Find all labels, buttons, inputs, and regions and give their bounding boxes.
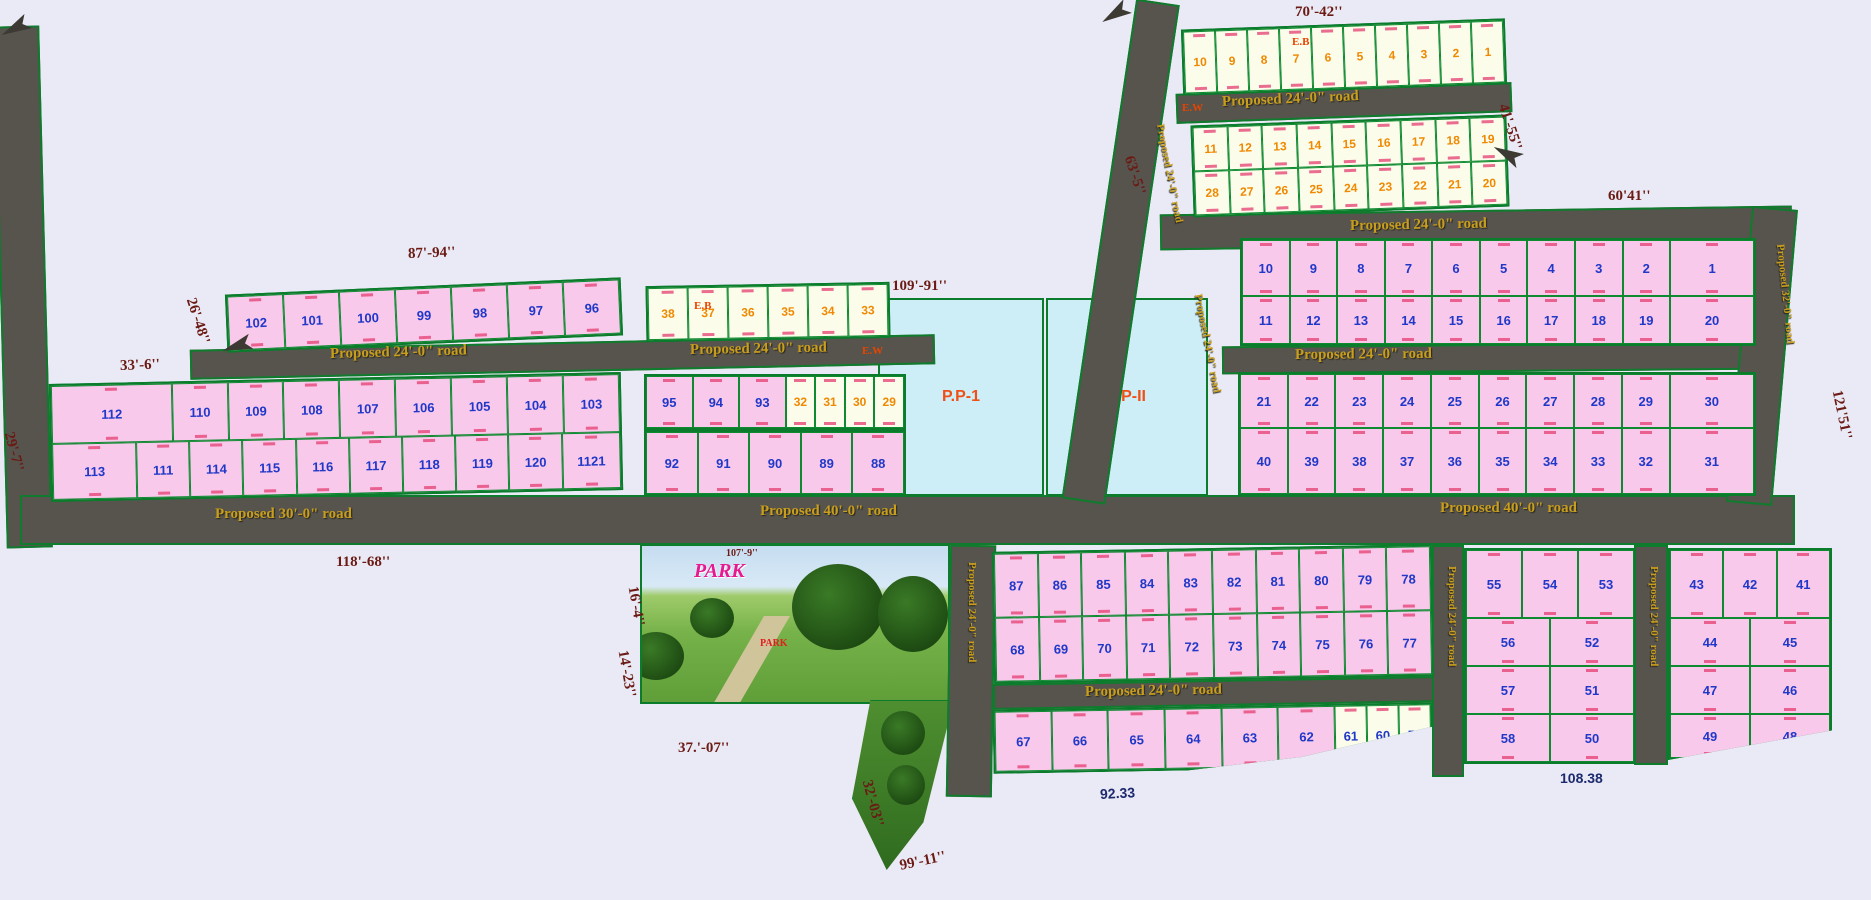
plot-number: 81 [1270, 573, 1285, 588]
plot-number: 37 [1400, 454, 1414, 469]
plot-number: 112 [101, 406, 122, 421]
plot-cell-9[interactable]: 9 [1290, 240, 1338, 296]
plot-number: 12 [1238, 140, 1252, 154]
plot-number: 26 [1495, 394, 1509, 409]
plot-cell-119[interactable]: 119 [455, 434, 509, 491]
road-label: Proposed 24'-0" road [690, 340, 827, 359]
plot-cell-91[interactable]: 91 [698, 432, 750, 494]
plot-cell-118[interactable]: 118 [402, 436, 456, 493]
plot-cell-32[interactable]: 32 [786, 376, 816, 428]
plot-number: 78 [1401, 571, 1416, 586]
plot-cell-53[interactable]: 53 [1578, 550, 1634, 618]
plot-cell-96[interactable]: 96 [563, 279, 621, 335]
plot-number: 33 [1591, 454, 1605, 469]
plot-number: 108 [301, 402, 323, 417]
plot-cell-97[interactable]: 97 [507, 282, 565, 338]
park-tree [792, 564, 884, 650]
plot-cell-36[interactable]: 36 [728, 286, 769, 339]
plot-number: 24 [1400, 394, 1414, 409]
plot-number: 107 [357, 401, 379, 416]
plot-cell-84[interactable]: 84 [1125, 551, 1170, 616]
plot-cell-28[interactable]: 28 [1574, 374, 1622, 428]
block-middle-mini-top: 383736353433 [646, 282, 891, 342]
plot-cell-114[interactable]: 114 [189, 440, 243, 497]
dimension-label: 109'-91'' [892, 278, 947, 295]
plot-row: 5751 [1466, 666, 1634, 714]
plot-cell-54[interactable]: 54 [1522, 550, 1578, 618]
plot-cell-93[interactable]: 93 [739, 376, 786, 428]
plot-cell-83[interactable]: 83 [1168, 550, 1213, 615]
plot-cell-10[interactable]: 10 [1183, 30, 1217, 93]
plot-number: 99 [416, 307, 431, 323]
plot-cell-1[interactable]: 1 [1670, 240, 1754, 296]
plot-number: 6 [1324, 50, 1331, 64]
park-sublabel: PARK [760, 638, 788, 649]
plot-number: 2 [1643, 261, 1650, 276]
dimension-label: 92.33 [1100, 784, 1136, 802]
plot-cell-4[interactable]: 4 [1527, 240, 1575, 296]
plot-cell-117[interactable]: 117 [349, 437, 403, 494]
plot-cell-74[interactable]: 74 [1257, 612, 1302, 677]
plot-cell-87[interactable]: 87 [994, 553, 1039, 618]
plot-number: 23 [1379, 180, 1393, 194]
plot-number: 117 [365, 457, 386, 472]
plot-row: 4746 [1670, 666, 1830, 714]
plot-cell-6[interactable]: 6 [1311, 26, 1345, 89]
plot-row: 68697071727374757677 [995, 610, 1432, 682]
plot-cell-13[interactable]: 13 [1337, 296, 1385, 344]
road-label: Proposed 24'-0" road [330, 342, 467, 363]
plot-cell-19[interactable]: 19 [1623, 296, 1671, 344]
plot-cell-2[interactable]: 2 [1623, 240, 1671, 296]
road-label: Proposed 24'-0" road [1446, 566, 1458, 666]
park-tree [881, 711, 925, 755]
plot-cell-14[interactable]: 14 [1297, 123, 1333, 168]
plot-number: 87 [1009, 578, 1024, 593]
plot-cell-35[interactable]: 35 [768, 285, 809, 338]
plot-cell-46[interactable]: 46 [1750, 666, 1830, 714]
plot-cell-90[interactable]: 90 [749, 432, 801, 494]
plot-number: 106 [413, 399, 435, 414]
plot-number: 28 [1591, 394, 1605, 409]
block-left-main: 1121101091081071061051041031131111141151… [49, 372, 623, 502]
plot-cell-20[interactable]: 20 [1471, 161, 1507, 206]
plot-number: 4 [1548, 261, 1555, 276]
plot-number: 119 [472, 455, 493, 470]
dimension-label: 87'-94'' [408, 244, 456, 263]
plot-number: 90 [768, 456, 782, 471]
plot-number: 29 [883, 395, 896, 409]
plot-cell-29[interactable]: 29 [1622, 374, 1670, 428]
plot-number: 102 [245, 314, 267, 330]
road-label: Proposed 24'-0" road [1154, 123, 1185, 224]
plot-cell-18[interactable]: 18 [1435, 118, 1471, 163]
plot-number: 84 [1140, 576, 1155, 591]
plot-number: 10 [1259, 261, 1273, 276]
plot-number: 18 [1446, 133, 1460, 147]
plot-cell-33[interactable]: 33 [1574, 428, 1622, 494]
plot-number: 28 [1205, 186, 1219, 200]
dimension-label: 14'-23'' [614, 649, 639, 699]
plot-cell-23[interactable]: 23 [1335, 374, 1383, 428]
plot-cell-111[interactable]: 111 [136, 441, 190, 498]
plot-number: 67 [1016, 734, 1031, 749]
plot-cell-8[interactable]: 8 [1337, 240, 1385, 296]
plot-cell-14[interactable]: 14 [1385, 296, 1433, 344]
plot-number: 47 [1703, 683, 1717, 698]
plot-cell-61[interactable]: 61 [1334, 705, 1367, 766]
plot-number: 11 [1259, 313, 1273, 328]
plot-cell-16[interactable]: 16 [1480, 296, 1528, 344]
plot-cell-100[interactable]: 100 [339, 289, 397, 345]
road-label: Proposed 24'-0" road [1350, 216, 1487, 235]
plot-cell-34[interactable]: 34 [1526, 428, 1574, 494]
plot-cell-24[interactable]: 24 [1383, 374, 1431, 428]
plot-cell-12[interactable]: 12 [1227, 125, 1263, 170]
plot-number: 63 [1243, 730, 1258, 745]
plot-cell-73[interactable]: 73 [1213, 613, 1258, 678]
plot-cell-85[interactable]: 85 [1081, 552, 1126, 617]
plot-number: 83 [1183, 575, 1198, 590]
plot-number: 97 [528, 302, 543, 318]
plot-cell-67[interactable]: 67 [995, 711, 1053, 772]
plot-cell-49[interactable]: 49 [1670, 714, 1750, 758]
plot-number: 109 [245, 403, 267, 418]
plot-number: 74 [1272, 637, 1287, 652]
plot-number: 18 [1591, 313, 1605, 328]
plot-cell-23[interactable]: 23 [1367, 164, 1403, 209]
plot-number: 60 [1376, 727, 1391, 742]
plot-cell-92[interactable]: 92 [646, 432, 698, 494]
plot-cell-31[interactable]: 31 [1670, 428, 1754, 494]
plot-number: 86 [1052, 577, 1067, 592]
plot-number: 40 [1257, 454, 1271, 469]
plot-number: 21 [1257, 394, 1271, 409]
plot-cell-95[interactable]: 95 [646, 376, 693, 428]
plot-cell-57[interactable]: 57 [1466, 666, 1550, 714]
plot-cell-6[interactable]: 6 [1432, 240, 1480, 296]
plot-number: 22 [1413, 178, 1427, 192]
plot-cell-2[interactable]: 2 [1439, 22, 1473, 85]
plot-cell-55[interactable]: 55 [1466, 550, 1522, 618]
plot-number: 94 [709, 395, 723, 410]
plot-cell-59[interactable]: 59 [1398, 704, 1431, 765]
plot-cell-115[interactable]: 115 [242, 439, 296, 496]
plot-row: 87868584838281807978 [994, 546, 1431, 618]
plot-cell-44[interactable]: 44 [1670, 618, 1750, 666]
plot-cell-27[interactable]: 27 [1526, 374, 1574, 428]
plot-cell-66[interactable]: 66 [1051, 710, 1109, 771]
plot-cell-60[interactable]: 60 [1366, 705, 1399, 766]
plot-cell-21[interactable]: 21 [1437, 162, 1473, 207]
plot-number: 38 [1352, 454, 1366, 469]
plot-cell-80[interactable]: 80 [1299, 548, 1344, 613]
plot-cell-102[interactable]: 102 [227, 294, 285, 350]
plot-cell-35[interactable]: 35 [1479, 428, 1527, 494]
plot-cell-88[interactable]: 88 [852, 432, 904, 494]
plot-number: 14 [1401, 313, 1415, 328]
plot-cell-28[interactable]: 28 [1194, 170, 1230, 215]
plot-cell-8[interactable]: 8 [1247, 28, 1281, 91]
plot-cell-38[interactable]: 38 [1335, 428, 1383, 494]
plot-cell-98[interactable]: 98 [451, 284, 509, 340]
plot-row: 11121314151617181920 [1242, 296, 1754, 344]
plot-cell-26[interactable]: 26 [1263, 168, 1299, 213]
plot-cell-110[interactable]: 110 [171, 382, 228, 441]
plot-number: 92 [665, 456, 679, 471]
plot-number: 36 [1448, 454, 1462, 469]
plot-cell-99[interactable]: 99 [395, 287, 453, 343]
plot-cell-31[interactable]: 31 [815, 376, 845, 428]
plot-row: 40393837363534333231 [1240, 428, 1754, 494]
plot-cell-113[interactable]: 113 [52, 442, 137, 500]
plot-row: 434241 [1670, 550, 1830, 618]
plot-cell-7[interactable]: 7 [1385, 240, 1433, 296]
plot-cell-82[interactable]: 82 [1212, 549, 1257, 614]
plot-row: 4445 [1670, 618, 1830, 666]
plot-cell-68[interactable]: 68 [995, 617, 1040, 682]
plot-cell-3[interactable]: 3 [1575, 240, 1623, 296]
road-left-vertical [0, 25, 53, 548]
plot-cell-9[interactable]: 9 [1215, 29, 1249, 92]
plot-cell-42[interactable]: 42 [1723, 550, 1776, 618]
plot-cell-26[interactable]: 26 [1479, 374, 1527, 428]
plot-cell-11[interactable]: 11 [1242, 296, 1290, 344]
plot-cell-1[interactable]: 1 [1471, 20, 1505, 83]
plot-number: 25 [1448, 394, 1462, 409]
plot-cell-69[interactable]: 69 [1039, 616, 1084, 681]
plot-cell-70[interactable]: 70 [1082, 616, 1127, 681]
plot-cell-63[interactable]: 63 [1221, 707, 1279, 768]
plot-number: 73 [1228, 638, 1243, 653]
plot-cell-109[interactable]: 109 [227, 381, 284, 440]
plot-cell-13[interactable]: 13 [1262, 124, 1298, 169]
plot-cell-106[interactable]: 106 [395, 378, 452, 437]
plot-cell-15[interactable]: 15 [1432, 296, 1480, 344]
plot-cell-5[interactable]: 5 [1480, 240, 1528, 296]
plot-number: 75 [1315, 636, 1330, 651]
plot-number: 71 [1141, 640, 1156, 655]
plot-number: 5 [1500, 261, 1507, 276]
plot-cell-21[interactable]: 21 [1240, 374, 1288, 428]
plot-cell-62[interactable]: 62 [1278, 706, 1336, 767]
plot-cell-76[interactable]: 76 [1344, 611, 1389, 676]
plot-cell-16[interactable]: 16 [1366, 120, 1402, 165]
plot-cell-81[interactable]: 81 [1255, 548, 1300, 613]
plot-number: 43 [1689, 577, 1703, 592]
plot-number: 91 [716, 456, 730, 471]
plot-cell-33[interactable]: 33 [848, 284, 889, 337]
plot-cell-4[interactable]: 4 [1375, 24, 1409, 87]
plot-cell-103[interactable]: 103 [563, 374, 620, 433]
plot-number: 9 [1310, 261, 1317, 276]
plot-number: 50 [1585, 731, 1599, 746]
plot-cell-18[interactable]: 18 [1575, 296, 1623, 344]
plot-number: 31 [823, 395, 836, 409]
plot-number: 8 [1357, 261, 1364, 276]
plot-cell-27[interactable]: 27 [1229, 169, 1265, 214]
plot-row: 676665646362616059 [995, 704, 1432, 772]
plot-number: 46 [1783, 683, 1797, 698]
plot-number: 48 [1783, 729, 1797, 744]
plot-number: 64 [1186, 731, 1201, 746]
plot-cell-48[interactable]: 48 [1750, 714, 1830, 758]
plot-number: 1121 [577, 453, 606, 469]
block-right-main-lower: 2122232425262728293040393837363534333231 [1238, 372, 1756, 496]
plot-cell-17[interactable]: 17 [1527, 296, 1575, 344]
road-label: Proposed 40'-0" road [760, 503, 897, 520]
plot-number: 30 [853, 395, 866, 409]
plot-cell-29[interactable]: 29 [874, 376, 904, 428]
plot-cell-15[interactable]: 15 [1331, 121, 1367, 166]
plot-cell-11[interactable]: 11 [1193, 126, 1229, 171]
plot-cell-43[interactable]: 43 [1670, 550, 1723, 618]
plot-cell-104[interactable]: 104 [507, 375, 564, 434]
plot-cell-89[interactable]: 89 [801, 432, 853, 494]
plot-number: 6 [1452, 261, 1459, 276]
plot-number: 19 [1639, 313, 1653, 328]
plot-cell-120[interactable]: 120 [508, 433, 562, 490]
plot-row: 5652 [1466, 618, 1634, 666]
utility-marker: E.W [862, 345, 883, 357]
plot-cell-12[interactable]: 12 [1290, 296, 1338, 344]
plot-cell-58[interactable]: 58 [1466, 714, 1550, 762]
plot-cell-41[interactable]: 41 [1777, 550, 1830, 618]
plot-cell-20[interactable]: 20 [1670, 296, 1754, 344]
plot-cell-32[interactable]: 32 [1622, 428, 1670, 494]
plot-cell-64[interactable]: 64 [1164, 708, 1222, 769]
plot-cell-79[interactable]: 79 [1343, 547, 1388, 612]
plot-cell-22[interactable]: 22 [1402, 163, 1438, 208]
park-tree [640, 632, 684, 680]
plot-cell-1121[interactable]: 1121 [562, 432, 622, 489]
plot-cell-3[interactable]: 3 [1407, 23, 1441, 86]
block-middle-row-95: 95949332313029 [644, 374, 906, 430]
plot-cell-39[interactable]: 39 [1288, 428, 1336, 494]
plot-cell-86[interactable]: 86 [1038, 552, 1083, 617]
plot-cell-17[interactable]: 17 [1400, 119, 1436, 164]
road-label: Proposed 24'-0" road [966, 562, 978, 662]
plot-number: 66 [1073, 733, 1088, 748]
plot-cell-107[interactable]: 107 [339, 379, 396, 438]
plot-number: 41 [1796, 577, 1810, 592]
plot-number: 80 [1314, 572, 1329, 587]
plot-number: 33 [861, 303, 875, 317]
plot-number: 3 [1420, 47, 1427, 61]
plot-cell-47[interactable]: 47 [1670, 666, 1750, 714]
plot-number: 21 [1448, 177, 1462, 191]
plot-number: 51 [1585, 683, 1599, 698]
plot-number: 5 [1356, 49, 1363, 63]
park-tree [690, 598, 734, 638]
plot-number: 20 [1482, 176, 1496, 190]
plot-number: 103 [580, 396, 602, 411]
plot-row: 21222324252627282930 [1240, 374, 1754, 428]
plot-number: 32 [1639, 454, 1653, 469]
plot-cell-30[interactable]: 30 [1670, 374, 1754, 428]
plot-number: 17 [1544, 313, 1558, 328]
plot-cell-24[interactable]: 24 [1333, 165, 1369, 210]
park-area[interactable]: PARK PARK [640, 544, 950, 704]
plot-cell-34[interactable]: 34 [808, 285, 849, 338]
plot-cell-37[interactable]: 37 [688, 287, 729, 340]
plot-number: 16 [1377, 136, 1391, 150]
utility-marker: E.W [1182, 102, 1203, 114]
plot-cell-75[interactable]: 75 [1300, 612, 1345, 677]
plot-cell-71[interactable]: 71 [1126, 615, 1171, 680]
plot-number: 101 [301, 312, 323, 328]
plot-number: 25 [1309, 182, 1323, 196]
plot-number: 69 [1054, 641, 1069, 656]
plot-cell-78[interactable]: 78 [1386, 546, 1431, 611]
plot-cell-22[interactable]: 22 [1288, 374, 1336, 428]
plot-cell-45[interactable]: 45 [1750, 618, 1830, 666]
park-label: PARK [694, 560, 745, 583]
plot-cell-56[interactable]: 56 [1466, 618, 1550, 666]
dimension-label: 70'-42'' [1295, 4, 1343, 21]
plot-cell-94[interactable]: 94 [693, 376, 740, 428]
plot-cell-38[interactable]: 38 [648, 287, 689, 340]
plot-cell-30[interactable]: 30 [845, 376, 875, 428]
plot-cell-105[interactable]: 105 [451, 376, 508, 435]
plot-number: 93 [755, 395, 769, 410]
plot-cell-37[interactable]: 37 [1383, 428, 1431, 494]
road-label: Proposed 24'-0" road [1085, 682, 1222, 701]
plot-number: 65 [1129, 732, 1144, 747]
plot-cell-108[interactable]: 108 [283, 380, 340, 439]
plot-cell-25[interactable]: 25 [1431, 374, 1479, 428]
plot-cell-36[interactable]: 36 [1431, 428, 1479, 494]
plot-number: 34 [821, 304, 835, 318]
plot-number: 111 [153, 462, 174, 477]
plot-cell-116[interactable]: 116 [296, 438, 350, 495]
road-label: Proposed 24'-0" road [1295, 346, 1432, 364]
plot-row: 10210110099989796 [227, 279, 621, 350]
plot-number: 114 [206, 461, 227, 476]
block-bottom-right-b: 434241444547464948 [1668, 548, 1832, 760]
plot-cell-101[interactable]: 101 [283, 292, 341, 348]
plot-number: 115 [259, 460, 280, 475]
plot-row: 555453 [1466, 550, 1634, 618]
plot-number: 62 [1299, 729, 1314, 744]
block-middle-row-92: 9291908988 [644, 430, 906, 496]
plot-number: 29 [1639, 394, 1653, 409]
plot-cell-50[interactable]: 50 [1550, 714, 1634, 762]
plot-row: 9291908988 [646, 432, 904, 494]
plot-number: 104 [524, 397, 546, 412]
plot-number: 61 [1343, 728, 1358, 743]
plot-cell-10[interactable]: 10 [1242, 240, 1290, 296]
plot-number: 89 [819, 456, 833, 471]
plot-cell-72[interactable]: 72 [1169, 614, 1214, 679]
plot-number: 77 [1402, 635, 1417, 650]
plot-cell-65[interactable]: 65 [1108, 709, 1166, 770]
plot-cell-25[interactable]: 25 [1298, 167, 1334, 212]
plot-cell-51[interactable]: 51 [1550, 666, 1634, 714]
plot-cell-112[interactable]: 112 [51, 383, 173, 444]
plot-number: 118 [419, 456, 440, 471]
plot-row: 10987654321 [1242, 240, 1754, 296]
plot-cell-40[interactable]: 40 [1240, 428, 1288, 494]
plot-cell-5[interactable]: 5 [1343, 25, 1377, 88]
dimension-label: 99'-11'' [898, 848, 947, 874]
plot-row: 5850 [1466, 714, 1634, 762]
plot-number: 12 [1306, 313, 1320, 328]
plot-cell-52[interactable]: 52 [1550, 618, 1634, 666]
block-bottom-middle-lower: 676665646362616059 [992, 702, 1433, 774]
plot-number: 35 [1495, 454, 1509, 469]
plot-cell-77[interactable]: 77 [1387, 610, 1432, 675]
